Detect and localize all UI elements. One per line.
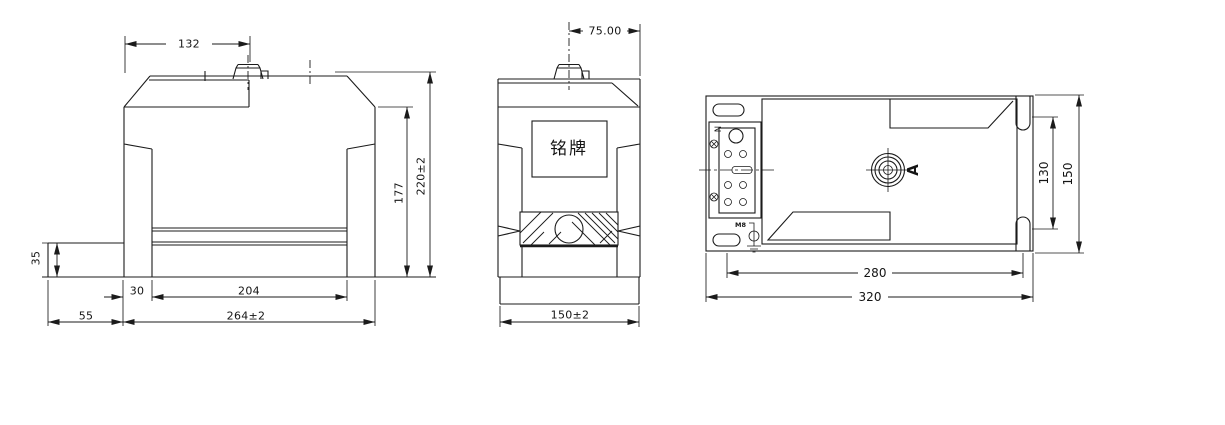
dim-overall-height-label: 220±2	[415, 157, 428, 196]
center-boss: A	[866, 148, 922, 192]
primary-window-band	[520, 212, 618, 246]
mount-slot-top-left	[713, 104, 744, 116]
dim-leg-width-label: 30	[130, 285, 145, 298]
top-view: N M8	[699, 95, 1084, 304]
cover-screws	[710, 140, 718, 201]
hatch-lines	[520, 212, 618, 245]
front-view: 132 35 30 204 55 264±2 177 220±2	[30, 36, 437, 326]
front-body-outline	[42, 71, 436, 277]
nameplate: 铭牌	[532, 121, 607, 177]
dim-window-height-label: 177	[393, 182, 406, 204]
terminal-n-label: N	[714, 126, 724, 132]
dim-slot-spacing-label: 130	[1037, 162, 1051, 185]
mount-slot-bottom-right	[1016, 217, 1030, 251]
side-terminal-knob	[554, 22, 589, 90]
front-terminal-knob	[233, 55, 310, 90]
dim-flange-depth-label: 150	[1061, 163, 1075, 186]
terminal-box-inner	[719, 128, 755, 213]
mount-slot-top-right	[1016, 96, 1030, 130]
top-right-step	[890, 99, 1013, 128]
mount-slot-bottom-left	[713, 234, 740, 246]
dim-step-height-label: 35	[30, 251, 43, 266]
dim-mount-span-label: 280	[864, 266, 887, 280]
side-body-outline	[498, 79, 640, 304]
technical-drawing: 132 35 30 204 55 264±2 177 220±2	[0, 0, 1225, 425]
dim-rail-span-label: 204	[238, 285, 260, 298]
dim-top-width-label: 132	[178, 38, 200, 51]
terminal-bushing	[729, 129, 743, 143]
top-dimensions: 130 150 280 320	[706, 95, 1084, 304]
ground-bolt-leader	[749, 223, 754, 231]
view-direction-label: A	[904, 164, 922, 176]
secondary-terminal-box: N	[699, 122, 777, 218]
dim-overall-length-label: 320	[859, 290, 882, 304]
ground-bolt-label: M8	[735, 221, 746, 229]
dim-terminal-offset-label: 75.00	[589, 25, 622, 38]
dim-overall-depth-label: 150±2	[551, 309, 590, 322]
nameplate-text: 铭牌	[550, 139, 588, 159]
side-dimensions: 75.00 150±2	[500, 24, 640, 327]
engineering-drawing-canvas: 132 35 30 204 55 264±2 177 220±2	[0, 0, 1225, 425]
terminal-holes	[725, 151, 747, 206]
molded-body-top	[762, 99, 1017, 244]
bottom-left-step	[768, 212, 890, 240]
side-view: 铭牌 75.00 150±2	[498, 22, 640, 327]
dim-left-extension-label: 55	[79, 310, 94, 323]
dim-overall-width-label: 264±2	[227, 310, 266, 323]
